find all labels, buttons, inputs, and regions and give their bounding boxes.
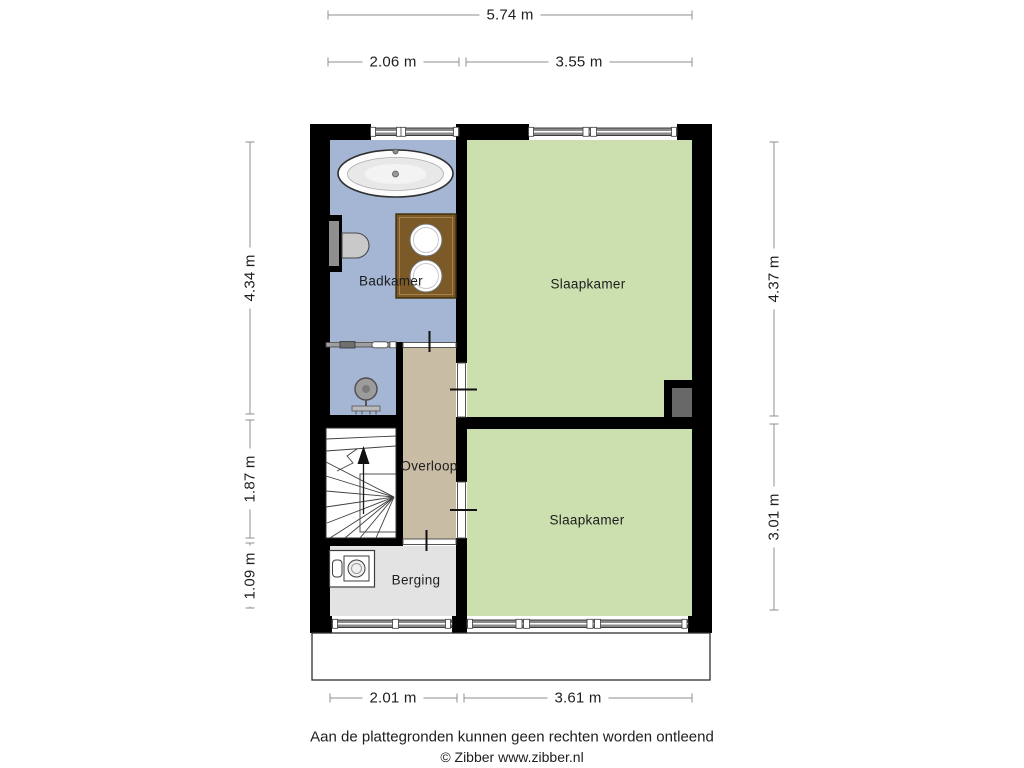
wall-right xyxy=(692,124,712,633)
room-label-berging: Berging xyxy=(392,573,441,588)
wall-shaft-top xyxy=(664,380,692,388)
footer-disclaimer: Aan de plattegronden kunnen geen rechten… xyxy=(310,729,714,746)
door-berging xyxy=(403,539,456,545)
room-floors xyxy=(326,140,692,618)
dim-top-right: 3.55 m xyxy=(548,54,609,71)
dim-left-middle: 1.87 m xyxy=(242,448,259,509)
wall-between-bedrooms xyxy=(456,417,692,429)
floorplan-drawing xyxy=(0,0,1024,768)
window-berging-icon xyxy=(332,619,452,628)
room-label-slaapkamer-top: Slaapkamer xyxy=(550,277,625,292)
window-badkamer-icon xyxy=(371,127,460,136)
dim-right-lower: 3.01 m xyxy=(766,486,783,547)
footer-copyright: © Zibber www.zibber.nl xyxy=(440,749,583,765)
window-slaapkamer-top-icon xyxy=(529,127,678,136)
wall-stairs-berging xyxy=(326,538,403,546)
roof-overhang-outline xyxy=(312,633,710,680)
room-label-overloop: Overloop xyxy=(400,459,457,474)
bathtub-icon xyxy=(338,149,453,197)
window-slaapkamer-bottom-icon xyxy=(467,619,688,628)
dim-top-total: 5.74 m xyxy=(479,7,540,24)
wall-divider-middle xyxy=(456,429,467,482)
floorplan-page: 5.74 m 2.06 m 3.55 m 4.34 m 1.87 m 1.09 … xyxy=(0,0,1024,768)
dim-bottom-right: 3.61 m xyxy=(547,690,608,707)
room-label-badkamer: Badkamer xyxy=(359,274,423,289)
dim-top-left: 2.06 m xyxy=(362,54,423,71)
dim-right-upper: 4.37 m xyxy=(766,248,783,309)
dim-left-upper: 4.34 m xyxy=(242,247,259,308)
wall-left xyxy=(310,124,330,633)
wall-divider-lower xyxy=(456,538,467,633)
dim-bottom-left: 2.01 m xyxy=(362,690,423,707)
shower-partition xyxy=(326,342,396,349)
overloop-floor xyxy=(403,348,456,539)
dim-left-lower: 1.09 m xyxy=(242,545,259,606)
wall-overloop-left xyxy=(396,342,403,546)
room-label-slaapkamer-bottom: Slaapkamer xyxy=(549,513,624,528)
shaft xyxy=(672,388,692,417)
wall-bathroom-stairs xyxy=(310,415,403,428)
staircase-icon xyxy=(326,428,396,538)
wall-divider-upper xyxy=(456,124,467,363)
washing-machine-icon xyxy=(330,551,375,588)
